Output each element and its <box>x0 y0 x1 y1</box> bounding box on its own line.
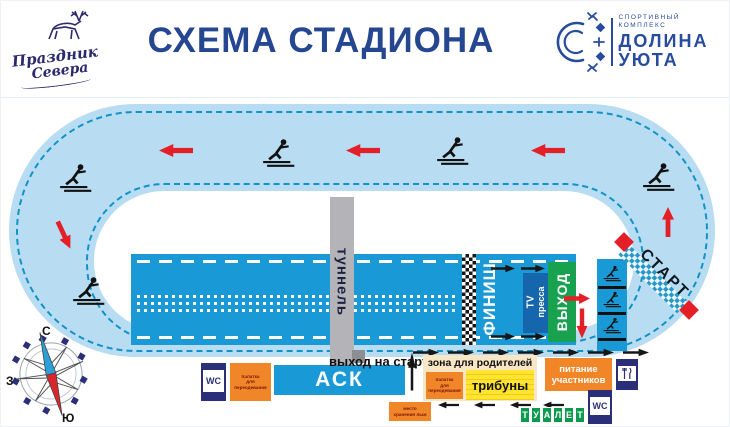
exit-label: ВЫХОД <box>554 273 570 331</box>
flow-arrow-left-icon <box>474 401 495 409</box>
parents-zone: зона для родителей палатка для переодева… <box>423 355 537 401</box>
venue-logo-text: спортивный комплекс ДОЛИНА УЮТА <box>619 14 709 70</box>
tv-label: TV <box>526 296 537 309</box>
skier-icon <box>642 162 676 192</box>
toilet-letter-tile: Т <box>575 407 585 423</box>
press-label: пресса <box>536 287 546 318</box>
toilet-letter-tile: У <box>531 407 541 423</box>
toilet-letter-tile: А <box>542 407 552 423</box>
ski-storage-box: место хранения лыж <box>389 402 431 421</box>
toilet-letter-tile: Е <box>564 407 574 423</box>
finish-line-checker <box>462 254 476 345</box>
skier-icon <box>59 163 93 193</box>
lane-dots-3 <box>137 309 459 312</box>
skier-icon <box>436 136 470 166</box>
wc-label: WC <box>590 397 610 415</box>
start-corridor <box>597 259 627 351</box>
stands-label: трибуны <box>472 378 528 393</box>
toilet-sign: Т У А Л Е Т <box>520 407 585 423</box>
exit-to-start-label: выход на старт <box>329 354 428 369</box>
ask-label: АСК <box>315 368 364 392</box>
compass-north-label: С <box>42 324 51 338</box>
snowflake-moon-icon <box>549 11 605 73</box>
start-gate-bar <box>598 312 626 315</box>
food-box: питание участников <box>545 358 612 391</box>
compass-west-label: З <box>6 374 14 388</box>
tunnel-label: туннель <box>334 248 351 316</box>
lane-dots-1 <box>137 295 459 298</box>
compass-rose: С З Ю <box>4 319 98 425</box>
compass-south-label: Ю <box>62 411 74 425</box>
toilet-letter-tile: Т <box>520 407 530 423</box>
stands-box: трибуны <box>466 370 534 400</box>
page-title: СХЕМА СТАДИОНА <box>116 21 526 61</box>
ask-building: АСК <box>274 365 405 395</box>
parents-zone-label: зона для родителей <box>423 357 537 369</box>
skier-icon <box>603 317 622 334</box>
skier-icon <box>72 276 106 306</box>
stadium-scheme-poster: ФИНИШ TV пресса ВЫХОД туннель СТАРТ <box>0 0 730 427</box>
deer-icon <box>35 7 93 41</box>
wc-label: WC <box>203 370 224 392</box>
wc-box: WC <box>201 363 226 401</box>
event-logo: Праздник Севера <box>13 7 123 95</box>
dining-icon <box>616 359 638 390</box>
wc-box: WC <box>588 390 612 424</box>
finish-label: ФИНИШ <box>480 262 500 335</box>
start-gate-bar <box>598 286 626 289</box>
venue-logo: спортивный комплекс ДОЛИНА УЮТА <box>549 11 708 73</box>
start-gate-bar <box>598 338 626 341</box>
fork-knife-icon <box>621 367 633 380</box>
changing-tent-box: палатка для переодевания <box>426 372 463 399</box>
skier-icon <box>603 265 622 282</box>
skier-icon <box>603 291 622 308</box>
flow-arrow-left-icon <box>438 401 459 409</box>
venue-logo-divider <box>611 18 613 66</box>
header-divider <box>1 97 730 98</box>
toilet-letter-tile: Л <box>553 407 563 423</box>
skier-icon <box>262 138 296 168</box>
changing-tent-box: палатка для переодевания <box>230 363 271 401</box>
lane-dots-2 <box>137 302 459 305</box>
event-logo-text: Праздник Севера <box>11 41 125 91</box>
